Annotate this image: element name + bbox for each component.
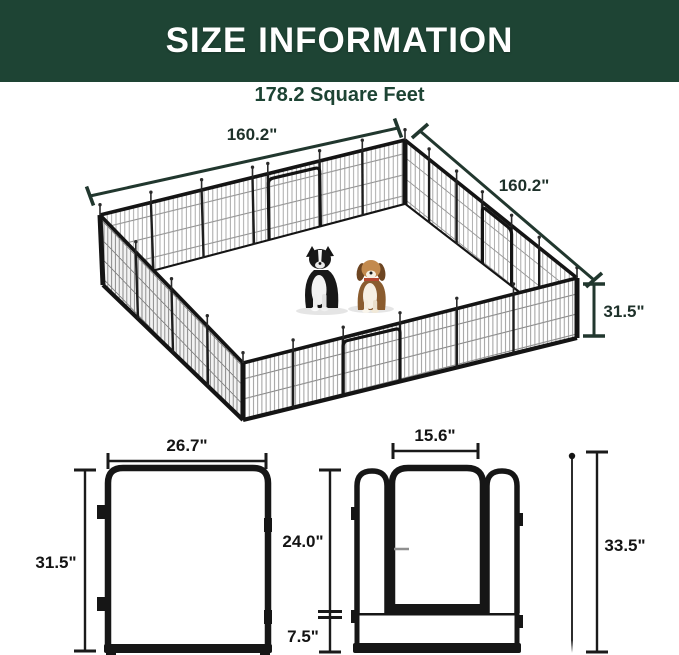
dim-label-side-right: 160.2" (499, 176, 550, 195)
door-hinge-bottom (480, 566, 489, 579)
dim-label-door-width: 15.6" (414, 426, 455, 445)
panel-diagram: 26.7" 31.5" (35, 436, 272, 655)
dim-label-total-height: 33.5" (604, 536, 645, 555)
playpen-isometric: 160.2" 160.2" 31.5" (87, 119, 645, 421)
size-infographic: 160.2" 160.2" 31.5" 26.7" (0, 0, 679, 655)
dim-label-bottom-height: 7.5" (287, 627, 319, 646)
door-panel-diagram: 15.6" 24.0" 7.5" 33.5" (282, 426, 645, 653)
dim-label-side-left: 160.2" (227, 125, 278, 144)
border-collie-illustration (305, 246, 338, 311)
dim-label-panel-height: 31.5" (35, 553, 76, 572)
dim-label-door-height: 24.0" (282, 532, 323, 551)
dim-label-panel-width: 26.7" (166, 436, 207, 455)
ground-stake-illustration (569, 453, 575, 653)
door-hinge-top (480, 500, 489, 513)
dim-label-iso-height: 31.5" (603, 302, 644, 321)
